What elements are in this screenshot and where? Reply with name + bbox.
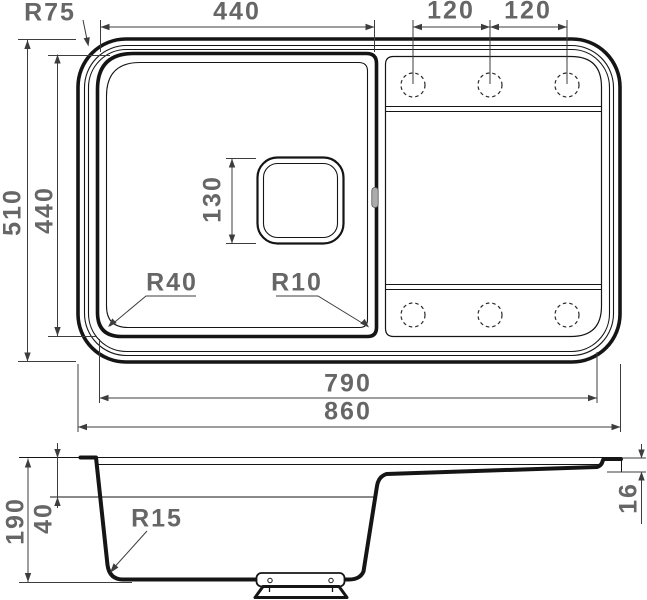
dim-label-hole-gap-1: 120 — [427, 0, 475, 24]
section-view — [19, 458, 622, 598]
dim-label-corner-radius: R75 — [24, 1, 76, 26]
bowl-outline — [98, 54, 377, 337]
dim-label-ledge-depth: 40 — [32, 502, 57, 534]
dim-label-bowl-radius-left: R40 — [146, 271, 198, 296]
dim-label-hole-gap-2: 120 — [504, 0, 552, 24]
top-view — [78, 39, 620, 362]
dim-label-bowl-width: 440 — [213, 0, 261, 25]
sink-dimension-drawing: R75 440 120 120 510 440 130 R40 R10 790 … — [0, 0, 647, 600]
dim-label-inner-width: 790 — [324, 372, 372, 397]
section-dimensions — [19, 443, 646, 583]
overflow-notch — [372, 188, 378, 208]
dim-label-bowl-radius-right: R10 — [271, 271, 323, 296]
drawing-canvas — [0, 0, 647, 600]
dim-label-overall-height: 510 — [1, 188, 26, 236]
dim-label-bottom-radius: R15 — [131, 507, 183, 532]
dim-label-bowl-height: 440 — [33, 186, 58, 234]
dim-label-edge-thickness: 16 — [617, 482, 642, 514]
drainboard-outline — [386, 57, 602, 337]
drain-fitting — [255, 573, 347, 598]
dim-label-overall-width: 860 — [324, 400, 372, 425]
dim-label-drain-size: 130 — [201, 175, 226, 223]
dim-label-total-depth: 190 — [4, 497, 29, 545]
